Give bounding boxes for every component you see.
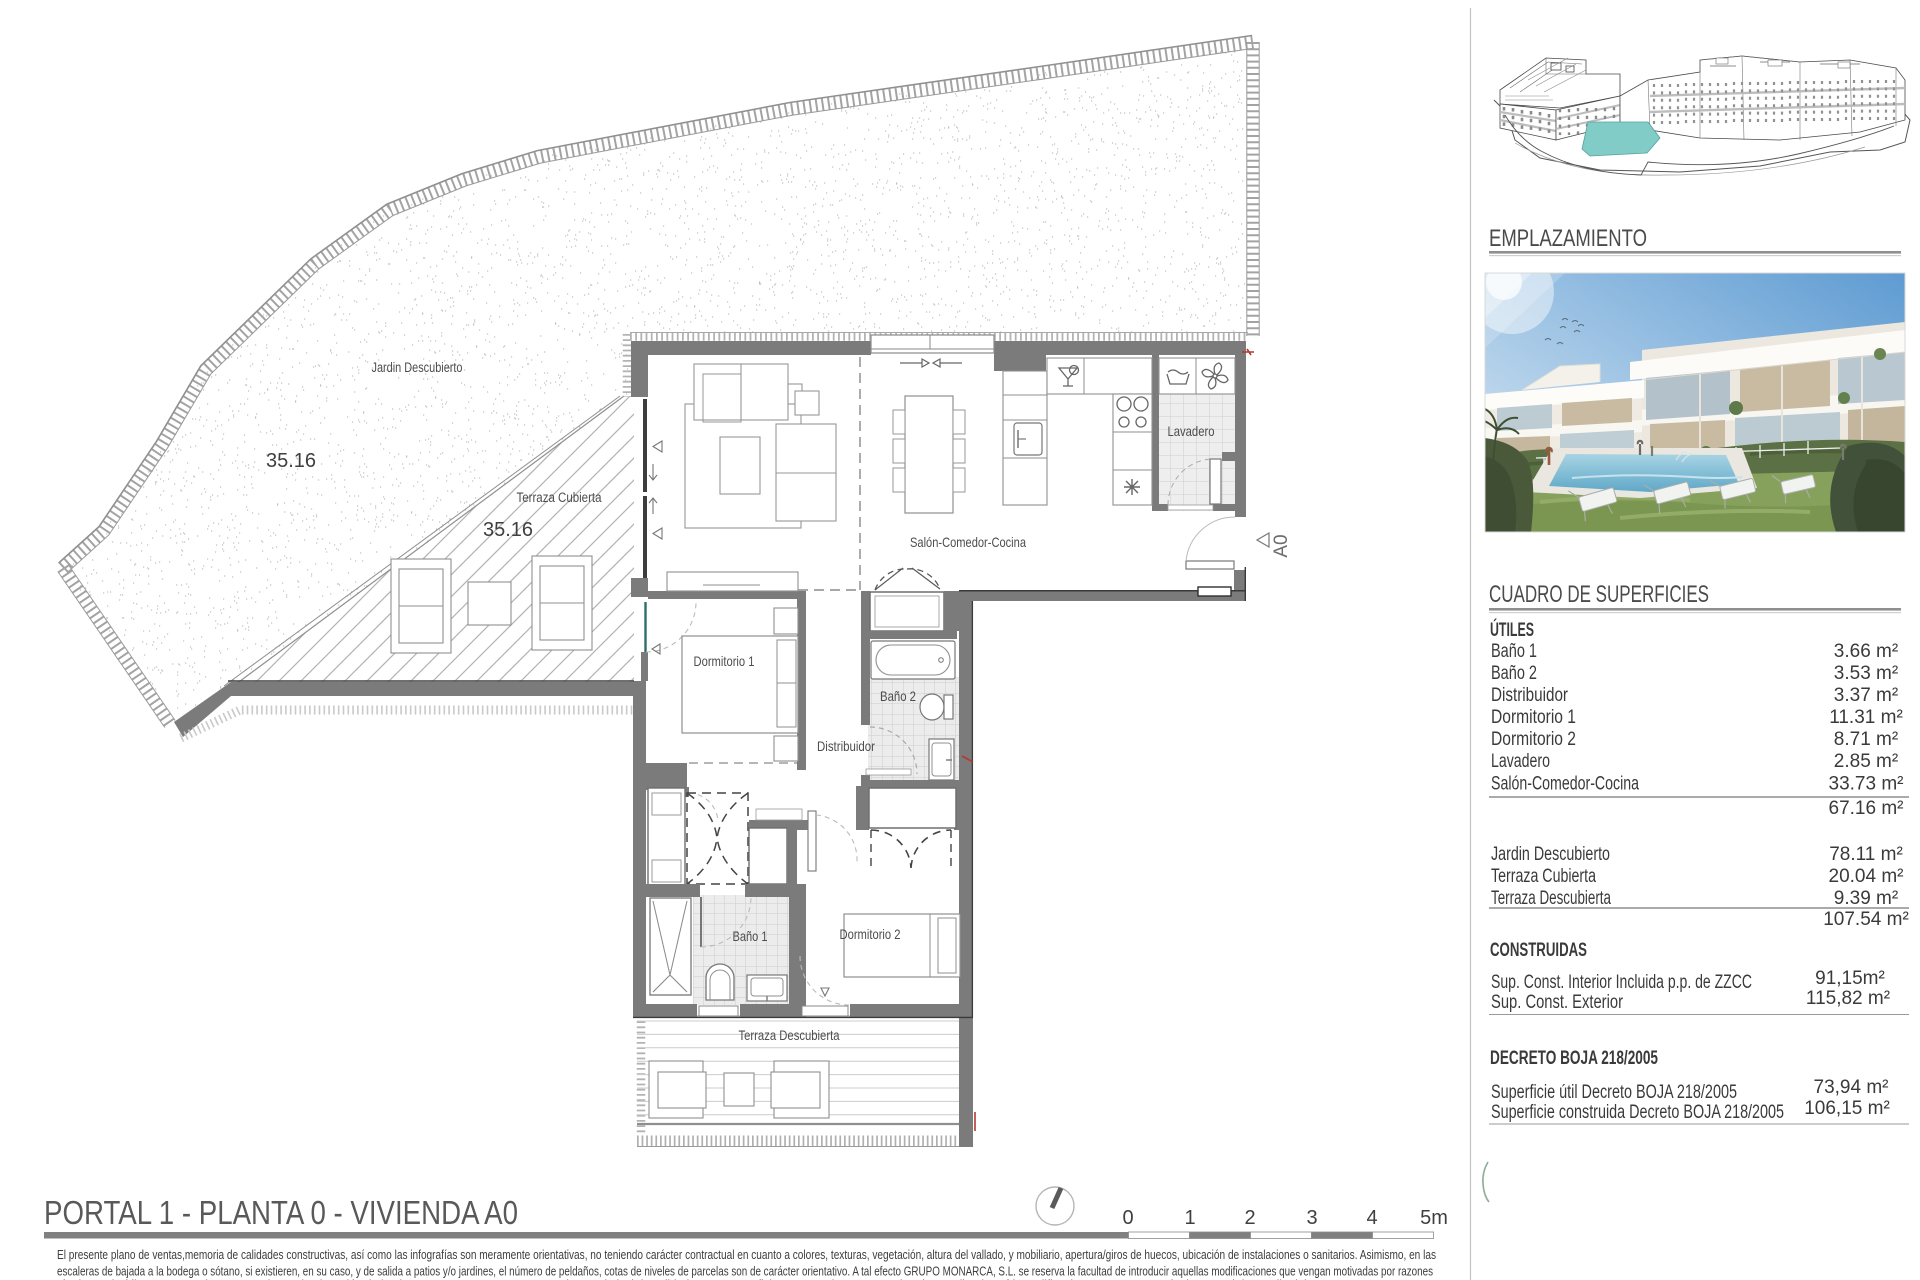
svg-text:0: 0 bbox=[1122, 1207, 1133, 1229]
svg-text:2: 2 bbox=[1244, 1207, 1255, 1229]
svg-text:Salón-Comedor-Cocina: Salón-Comedor-Cocina bbox=[1491, 774, 1639, 795]
svg-text:9.39 m²: 9.39 m² bbox=[1834, 888, 1898, 909]
svg-text:escaleras de bajada a la bodeg: escaleras de bajada a la bodega o sótano… bbox=[57, 1265, 1433, 1279]
svg-text:1: 1 bbox=[1184, 1207, 1195, 1229]
svg-text:35.16: 35.16 bbox=[266, 450, 316, 472]
svg-text:3.53 m²: 3.53 m² bbox=[1834, 663, 1898, 684]
svg-text:Baño 1: Baño 1 bbox=[1491, 641, 1537, 662]
svg-text:Baño 2: Baño 2 bbox=[1491, 663, 1537, 684]
svg-text:Dormitorio 1: Dormitorio 1 bbox=[694, 653, 755, 669]
svg-text:91,15m²: 91,15m² bbox=[1815, 968, 1885, 989]
svg-text:8.71 m²: 8.71 m² bbox=[1834, 729, 1898, 750]
svg-text:EMPLAZAMIENTO: EMPLAZAMIENTO bbox=[1489, 225, 1647, 252]
svg-text:Terraza Descubierta: Terraza Descubierta bbox=[1491, 888, 1611, 909]
svg-text:5m: 5m bbox=[1420, 1207, 1448, 1229]
svg-text:Dormitorio 2: Dormitorio 2 bbox=[840, 926, 901, 942]
svg-text:CUADRO DE SUPERFICIES: CUADRO DE SUPERFICIES bbox=[1489, 581, 1709, 608]
svg-text:ÚTILES: ÚTILES bbox=[1490, 619, 1534, 641]
svg-text:Jardin Descubierto: Jardin Descubierto bbox=[1491, 844, 1610, 865]
svg-text:Dormitorio 1: Dormitorio 1 bbox=[1491, 707, 1576, 728]
svg-text:3: 3 bbox=[1306, 1207, 1317, 1229]
svg-text:73,94 m²: 73,94 m² bbox=[1814, 1077, 1889, 1098]
svg-text:A0: A0 bbox=[1271, 534, 1292, 557]
svg-text:35.16: 35.16 bbox=[483, 519, 533, 541]
svg-text:Distribuidor: Distribuidor bbox=[817, 738, 875, 754]
svg-text:Lavadero: Lavadero bbox=[1168, 423, 1215, 439]
svg-text:Dormitorio 2: Dormitorio 2 bbox=[1491, 729, 1576, 750]
svg-text:PORTAL 1 - PLANTA 0 - VIVIENDA: PORTAL 1 - PLANTA 0 - VIVIENDA A0 bbox=[44, 1194, 518, 1231]
svg-text:Salón-Comedor-Cocina: Salón-Comedor-Cocina bbox=[910, 534, 1026, 550]
svg-text:DECRETO BOJA 218/2005: DECRETO BOJA 218/2005 bbox=[1490, 1048, 1658, 1069]
svg-text:Terraza Descubierta: Terraza Descubierta bbox=[739, 1027, 840, 1043]
svg-text:Distribuidor: Distribuidor bbox=[1491, 685, 1569, 706]
svg-text:Terraza Cubierta: Terraza Cubierta bbox=[517, 490, 602, 505]
svg-text:78.11 m²: 78.11 m² bbox=[1829, 844, 1903, 865]
svg-text:3.66 m²: 3.66 m² bbox=[1834, 641, 1898, 662]
svg-text:11.31 m²: 11.31 m² bbox=[1829, 707, 1903, 728]
svg-text:67.16 m²: 67.16 m² bbox=[1829, 798, 1904, 819]
svg-text:Sup. Const. Exterior: Sup. Const. Exterior bbox=[1491, 992, 1624, 1013]
svg-text:106,15 m²: 106,15 m² bbox=[1804, 1098, 1890, 1119]
svg-text:4: 4 bbox=[1366, 1207, 1377, 1229]
svg-text:33.73 m²: 33.73 m² bbox=[1829, 774, 1904, 795]
svg-text:Lavadero: Lavadero bbox=[1491, 751, 1550, 772]
svg-text:Baño 1: Baño 1 bbox=[733, 928, 768, 944]
svg-text:Terraza Cubierta: Terraza Cubierta bbox=[1491, 866, 1596, 887]
svg-text:Jardin Descubierto: Jardin Descubierto bbox=[372, 360, 463, 375]
svg-text:3.37 m²: 3.37 m² bbox=[1834, 685, 1898, 706]
svg-text:115,82 m²: 115,82 m² bbox=[1806, 988, 1890, 1009]
svg-text:107.54 m²: 107.54 m² bbox=[1823, 909, 1909, 930]
svg-text:Sup. Const. Interior Incluida: Sup. Const. Interior Incluida p.p. de ZZ… bbox=[1491, 972, 1752, 993]
svg-text:20.04 m²: 20.04 m² bbox=[1829, 866, 1904, 887]
svg-text:Superficie útil Decreto BOJA 2: Superficie útil Decreto BOJA 218/2005 bbox=[1491, 1082, 1737, 1103]
svg-text:El presente plano de ventas,me: El presente plano de ventas,memoria de c… bbox=[57, 1248, 1436, 1262]
svg-text:Baño 2: Baño 2 bbox=[880, 688, 916, 704]
svg-text:Superficie construida Decreto: Superficie construida Decreto BOJA 218/2… bbox=[1491, 1102, 1784, 1123]
svg-text:2.85 m²: 2.85 m² bbox=[1834, 751, 1898, 772]
svg-text:CONSTRUIDAS: CONSTRUIDAS bbox=[1490, 940, 1587, 961]
